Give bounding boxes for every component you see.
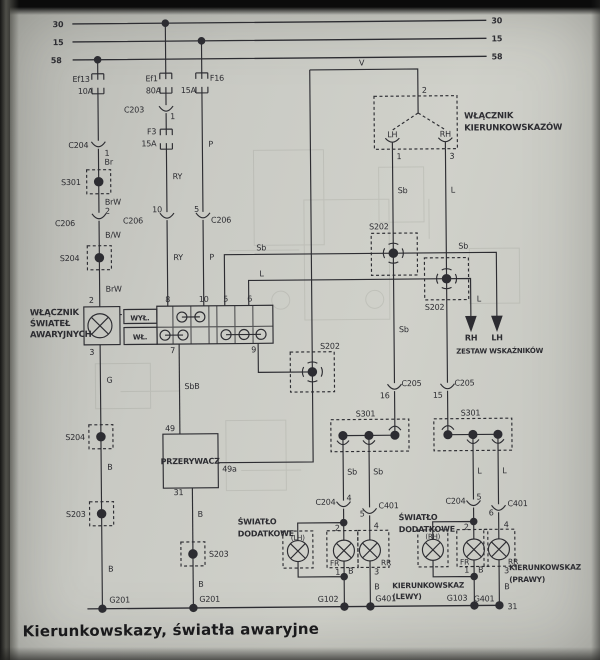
label-wire-l-v1: L	[451, 186, 456, 195]
fuse-ef1-symbol	[160, 73, 172, 93]
label-lamp-right-pin2: 2	[464, 523, 469, 532]
lamp-housings	[283, 529, 515, 568]
label-splice-s202-3: S202	[320, 342, 340, 351]
label-conn-c204-b: C204	[315, 498, 335, 507]
wire-sbb-run	[179, 344, 180, 434]
label-lamp-lh: (LH)	[291, 534, 305, 542]
label-conn-c206-a: C206	[55, 219, 75, 228]
label-conn-c401-a: C401	[378, 501, 398, 510]
label-fuse-f3: F3	[147, 127, 156, 136]
column-rh-l	[445, 149, 447, 435]
column-f16-p	[201, 41, 203, 306]
label-wire-l-d2: L	[502, 466, 507, 475]
label-arrow-lh: LH	[491, 333, 502, 342]
ground-bus	[87, 605, 499, 609]
wire-sb-feed	[224, 252, 497, 318]
column-lh-sb	[392, 149, 394, 435]
label-ground-g401-b: G401	[474, 594, 495, 603]
label-bus58-right: 58	[492, 52, 503, 61]
label-wire-b-right1: B	[478, 565, 483, 574]
label-conn-c205-a: C205	[401, 379, 421, 388]
label-ts-right-name-2: (PRAWY)	[509, 575, 545, 584]
label-hazard-pin6: 6	[247, 294, 252, 303]
label-lamp-right-pin4: 4	[504, 520, 509, 529]
label-flasher-name: PRZERYWACZ	[161, 457, 221, 467]
label-wire-sb-v2: Sb	[399, 325, 409, 334]
label-wire-b2: B	[108, 565, 113, 574]
label-wire-bw: B/W	[105, 231, 121, 240]
hazard-contact-box	[157, 305, 273, 344]
label-ts-left-name-2: (LEWY)	[392, 592, 421, 601]
label-extra-lamp-left-1: ŚWIATŁO	[238, 515, 277, 526]
label-lamp-left-pin2: 2	[335, 524, 340, 533]
label-bus15-right: 15	[491, 34, 502, 43]
label-conn-c206-c: C206	[211, 216, 231, 225]
fuse-f3-symbol	[160, 129, 172, 149]
lamp-symbols	[287, 539, 509, 562]
label-wire-g: G	[106, 376, 112, 385]
label-wire-sbb: SbB	[184, 382, 199, 391]
fuse-f16-symbol	[196, 73, 208, 93]
label-splice-s301-a: S301	[61, 178, 81, 187]
label-ts-rh: RH	[440, 130, 451, 139]
label-ts-left-name-1: KIERUNKOWSKAZ	[392, 581, 465, 591]
label-flasher-pin31: 31	[174, 488, 184, 497]
fuse-ef13-symbol	[92, 74, 104, 94]
label-wire-sb-h: Sb	[256, 243, 266, 252]
turn-signal-contacts	[385, 138, 452, 150]
label-ts-right-name-1: KIERUNKOWSKAZ	[509, 563, 582, 573]
label-wire-v: V	[359, 58, 365, 67]
label-splice-s203-b: S203	[209, 550, 229, 559]
photo-frame: 301558301558Ef1310AEf180AF1615AC2031F315…	[0, 0, 600, 660]
label-cluster-name: ZESTAW WSKAŹNIKÓW	[456, 346, 543, 356]
wire-v-net	[215, 69, 421, 463]
arrow-rh-icon	[466, 316, 476, 330]
label-splice-s202-2: S202	[425, 303, 445, 312]
label-wire-sb-d1: Sb	[347, 468, 357, 477]
label-ts-pin2: 2	[422, 86, 427, 95]
hazard-contacts	[160, 311, 266, 340]
label-splice-s301-b: S301	[356, 409, 376, 418]
label-bus15-left: 15	[53, 38, 64, 47]
column-ef13-hazard-lamp	[98, 60, 103, 609]
label-ts-lh: LH	[387, 130, 397, 139]
label-conn-c203: C203	[124, 105, 144, 114]
label-lamp-left-pin1: 1	[335, 568, 340, 577]
column-ef1-f3-ry	[165, 23, 167, 306]
label-wire-p2: P	[209, 253, 214, 262]
wiring-diagram-canvas: 301558301558Ef1310AEf180AF1615AC2031F315…	[0, 0, 600, 660]
label-splice-s301-c: S301	[461, 408, 481, 417]
label-conn-c205-b-pin: 15	[433, 391, 443, 400]
wire-flasher-ground	[192, 488, 193, 608]
label-ts-switch-name-1: WŁĄCZNIK	[464, 111, 514, 121]
label-conn-c204-c-pin: 5	[476, 492, 481, 501]
label-fuse-f16-amp: 15A	[181, 86, 197, 95]
label-ts-pin1: 1	[396, 152, 401, 161]
label-lamp-fr-left: FR	[330, 559, 339, 568]
label-splice-s203-a: S203	[66, 510, 86, 519]
label-ts-switch-name-2: KIERUNKOWSKAZÓW	[464, 121, 563, 134]
label-bus58-left: 58	[51, 56, 62, 65]
label-wire-brw1: BrW	[105, 198, 121, 207]
label-conn-c401-b: C401	[507, 499, 527, 508]
label-hazard-off: WYŁ.	[130, 314, 149, 322]
label-wire-b4: B	[198, 580, 203, 589]
label-hazard-pin2: 2	[89, 296, 94, 305]
label-wire-b3: B	[198, 510, 203, 519]
label-wire-sb-h2: Sb	[458, 242, 468, 251]
label-hazard-pin3: 3	[89, 348, 94, 357]
single-splices	[87, 169, 205, 567]
label-wire-sb-d2: Sb	[373, 467, 383, 476]
label-extra-lamp-right-1: ŚWIATŁO	[399, 511, 438, 522]
label-lamp-rh: (RH)	[425, 533, 440, 541]
hazard-lamp-x	[91, 317, 108, 334]
label-conn-c204-top: C204	[68, 141, 88, 150]
label-lamp-left-pin4: 4	[374, 521, 379, 530]
label-fuse-ef13: Ef13	[73, 75, 90, 84]
label-hazard-on: WŁ.	[133, 333, 147, 341]
label-bus30-right: 30	[491, 16, 502, 25]
hazard-contact-dividers	[157, 305, 273, 344]
wire-hazard-pin9	[258, 343, 312, 372]
label-flasher-pin49a: 49a	[222, 465, 237, 474]
turn-signal-switch-arms	[392, 113, 445, 130]
page-title: Kierunkowskazy, światła awaryjne	[23, 620, 320, 641]
label-wire-ry1: RY	[173, 172, 183, 181]
label-hazard-pin10: 10	[199, 295, 209, 304]
label-conn-c206-a-pin: 2	[105, 207, 110, 216]
label-extra-lamp-left-2: DODATKOWE	[238, 529, 294, 538]
label-ground-g102: G102	[318, 595, 339, 604]
label-conn-c401-a-pin: 5	[360, 509, 365, 518]
label-wire-p1: P	[208, 140, 213, 149]
label-wire-b-left1: B	[348, 567, 353, 576]
label-conn-c206-b: C206	[123, 216, 143, 225]
label-lamp-left-pin3: 3	[374, 567, 379, 576]
label-conn-c205-a-pin: 16	[380, 391, 390, 400]
label-ts-pin3: 3	[449, 152, 454, 161]
label-conn-c205-b: C205	[454, 378, 474, 387]
label-bus30-left: 30	[53, 20, 64, 29]
label-hazard-switch-name-3: AWARYJNYCH	[30, 330, 92, 341]
label-wire-l-h: L	[259, 269, 264, 278]
wire-l-feed	[249, 279, 471, 319]
label-ground-g103: G103	[447, 594, 468, 603]
label-conn-c401-b-pin: 6	[489, 508, 494, 517]
label-hazard-pin5: 5	[223, 295, 228, 304]
label-hazard-pin8: 8	[165, 295, 170, 304]
label-wire-b1: B	[107, 463, 112, 472]
label-conn-c206-c-pin: 5	[194, 205, 199, 214]
label-hazard-pin9: 9	[251, 345, 256, 354]
label-lamp-right-pin1: 1	[464, 566, 469, 575]
label-wire-b-left2: B	[374, 582, 379, 591]
label-wire-l-d1: L	[477, 466, 482, 475]
page-tilt-wrapper: 301558301558Ef1310AEf180AF1615AC2031F315…	[0, 0, 600, 660]
print-bleed-ghost	[93, 148, 521, 492]
label-conn-c203-pin: 1	[170, 112, 175, 121]
label-fuse-ef1-amp: 80A	[146, 86, 162, 95]
label-conn-c206-b-pin: 10	[152, 205, 162, 214]
label-conn-c204-b-pin: 4	[346, 494, 351, 503]
label-wire-l-v2: L	[477, 294, 482, 303]
label-wire-sb-v1: Sb	[398, 186, 408, 195]
arrow-lh-icon	[492, 316, 502, 330]
label-splice-s204-b: S204	[65, 433, 85, 442]
label-wire-br: Br	[104, 158, 113, 167]
label-terminal-31: 31	[507, 602, 517, 611]
label-fuse-f3-amp: 15A	[141, 139, 157, 148]
splice-s202-1-symbol	[371, 233, 417, 275]
label-ground-g201-b: G201	[199, 595, 220, 604]
label-ground-g201-a: G201	[109, 595, 130, 604]
label-conn-c204-c: C204	[445, 497, 465, 506]
bus-lines	[72, 20, 486, 60]
label-hazard-switch-name-2: ŚWIATEŁ	[30, 317, 71, 329]
label-wire-brw2: BrW	[106, 285, 122, 294]
label-flasher-pin49: 49	[165, 424, 175, 433]
label-splice-s204-a: S204	[60, 254, 80, 263]
label-hazard-pin7: 7	[170, 346, 175, 355]
label-splice-s202-1: S202	[369, 222, 389, 231]
label-lamp-rr-left: RR	[381, 558, 391, 567]
label-fuse-f16: F16	[210, 74, 224, 83]
label-fuse-ef1: Ef1	[145, 74, 158, 83]
label-arrow-rh: RH	[465, 333, 478, 342]
label-conn-c204-top-pin: 1	[104, 149, 109, 158]
label-hazard-switch-name-1: WŁĄCZNIK	[30, 308, 80, 318]
label-wire-ry2: RY	[173, 253, 183, 262]
label-fuse-ef13-amp: 10A	[78, 87, 94, 96]
